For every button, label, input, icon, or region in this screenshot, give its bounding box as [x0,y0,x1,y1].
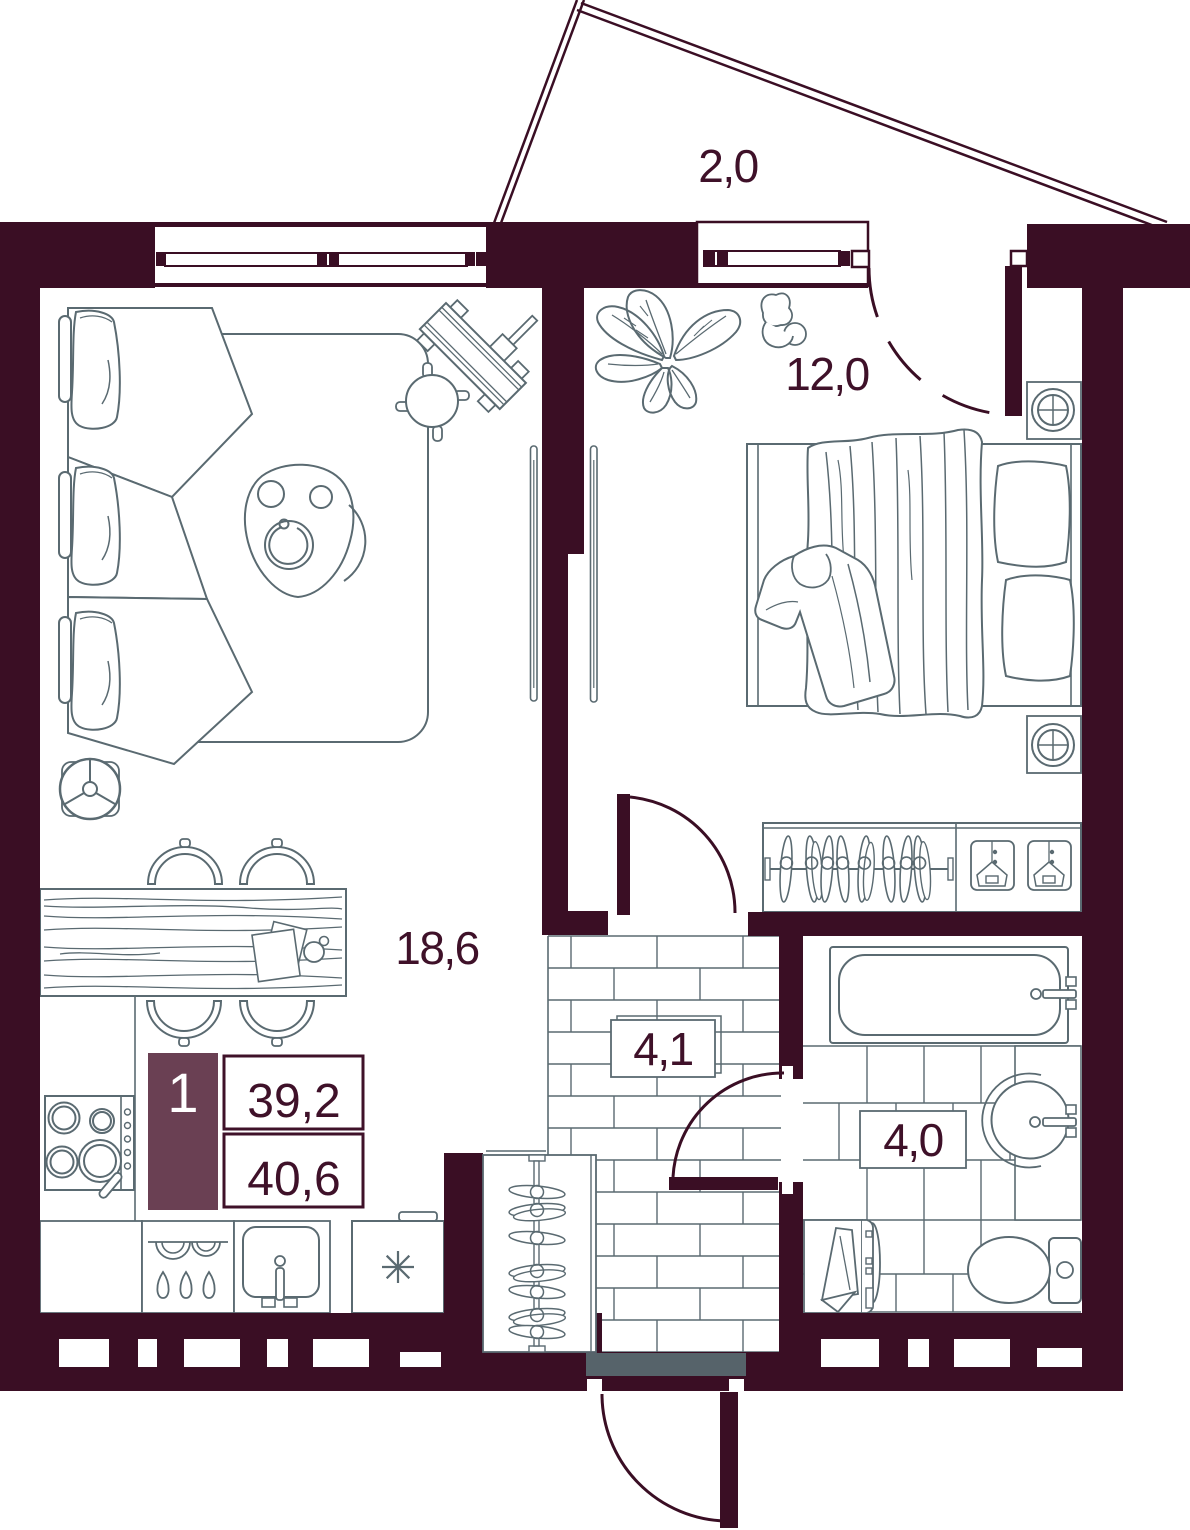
svg-text:40,6: 40,6 [247,1153,340,1206]
svg-text:12,0: 12,0 [785,348,869,400]
svg-text:2,0: 2,0 [698,140,757,192]
svg-text:4,1: 4,1 [633,1023,692,1075]
svg-text:4,0: 4,0 [883,1114,942,1166]
svg-text:1: 1 [167,1061,198,1124]
svg-text:39,2: 39,2 [247,1075,340,1128]
svg-text:18,6: 18,6 [395,922,479,974]
